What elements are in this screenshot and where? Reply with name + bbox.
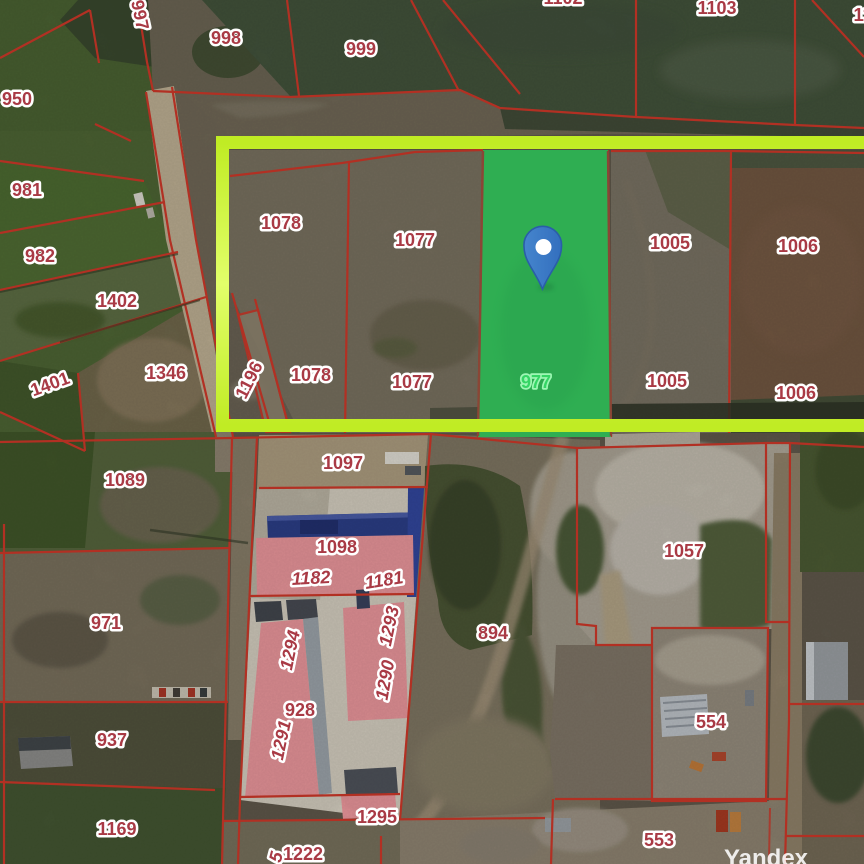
svg-text:1182: 1182	[291, 567, 331, 589]
svg-text:553: 553	[644, 830, 674, 850]
svg-text:1057: 1057	[664, 541, 704, 561]
svg-text:1102: 1102	[543, 0, 582, 8]
svg-text:554: 554	[696, 712, 726, 732]
svg-text:1098: 1098	[317, 537, 357, 557]
svg-text:1169: 1169	[97, 819, 136, 839]
svg-text:894: 894	[478, 623, 508, 643]
svg-text:1077: 1077	[395, 230, 435, 250]
svg-text:Yandex: Yandex	[724, 845, 809, 864]
svg-text:1103: 1103	[697, 0, 736, 18]
svg-text:950: 950	[2, 89, 32, 109]
svg-text:1006: 1006	[776, 383, 816, 403]
svg-text:110: 110	[853, 5, 864, 25]
svg-text:1346: 1346	[146, 363, 186, 383]
svg-text:981: 981	[12, 180, 42, 200]
svg-text:1097: 1097	[323, 453, 363, 473]
svg-text:1078: 1078	[261, 213, 301, 233]
svg-text:928: 928	[285, 700, 315, 720]
svg-text:1295: 1295	[357, 807, 397, 827]
svg-text:999: 999	[346, 39, 376, 59]
svg-text:971: 971	[91, 613, 121, 633]
svg-text:1402: 1402	[97, 291, 137, 311]
svg-text:1005: 1005	[647, 371, 687, 391]
svg-text:1078: 1078	[291, 365, 331, 385]
svg-text:937: 937	[97, 730, 127, 750]
svg-text:982: 982	[25, 246, 55, 266]
svg-text:1006: 1006	[778, 236, 818, 256]
svg-text:1222: 1222	[283, 844, 323, 864]
svg-text:1005: 1005	[650, 233, 690, 253]
svg-text:1089: 1089	[105, 470, 145, 490]
svg-text:977: 977	[521, 372, 551, 392]
svg-text:1077: 1077	[392, 372, 432, 392]
svg-text:998: 998	[211, 28, 241, 48]
